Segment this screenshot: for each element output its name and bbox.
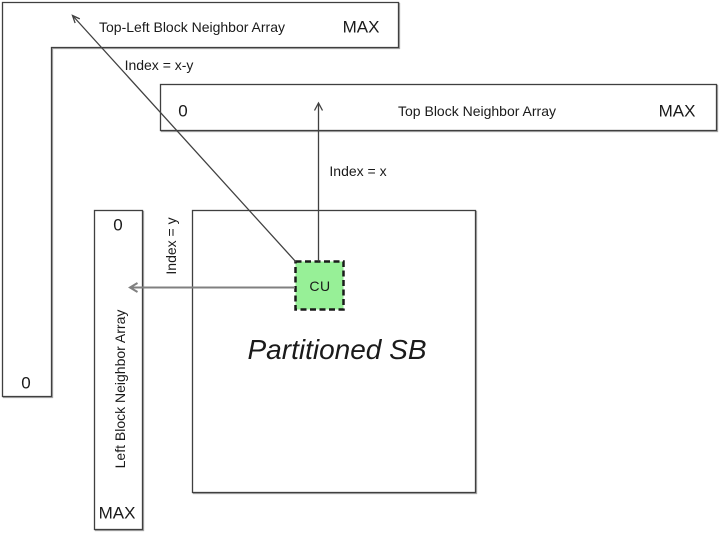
cu-label: CU <box>309 279 330 293</box>
top-array-zero-label: 0 <box>178 103 187 120</box>
top-array-label: Top Block Neighbor Array <box>398 104 556 118</box>
index-y-label: Index = y <box>164 217 178 274</box>
diagram-shapes <box>0 0 722 538</box>
top-array-max-label: MAX <box>659 103 696 120</box>
left-array-label: Left Block Neighbor Array <box>113 310 127 469</box>
diagram-canvas: Top-Left Block Neighbor Array MAX 0 0 To… <box>0 0 722 538</box>
index-x-label: Index = x <box>329 164 386 178</box>
top-left-array-max-label: MAX <box>343 19 380 36</box>
top-left-array-zero-label: 0 <box>21 375 30 392</box>
left-array-max-label: MAX <box>99 505 136 522</box>
index-xy-label: Index = x-y <box>125 58 194 72</box>
top-left-array-label: Top-Left Block Neighbor Array <box>99 20 285 34</box>
left-array-zero-label: 0 <box>113 217 122 234</box>
partitioned-sb-label: Partitioned SB <box>248 336 427 364</box>
array-boxes <box>3 3 717 530</box>
